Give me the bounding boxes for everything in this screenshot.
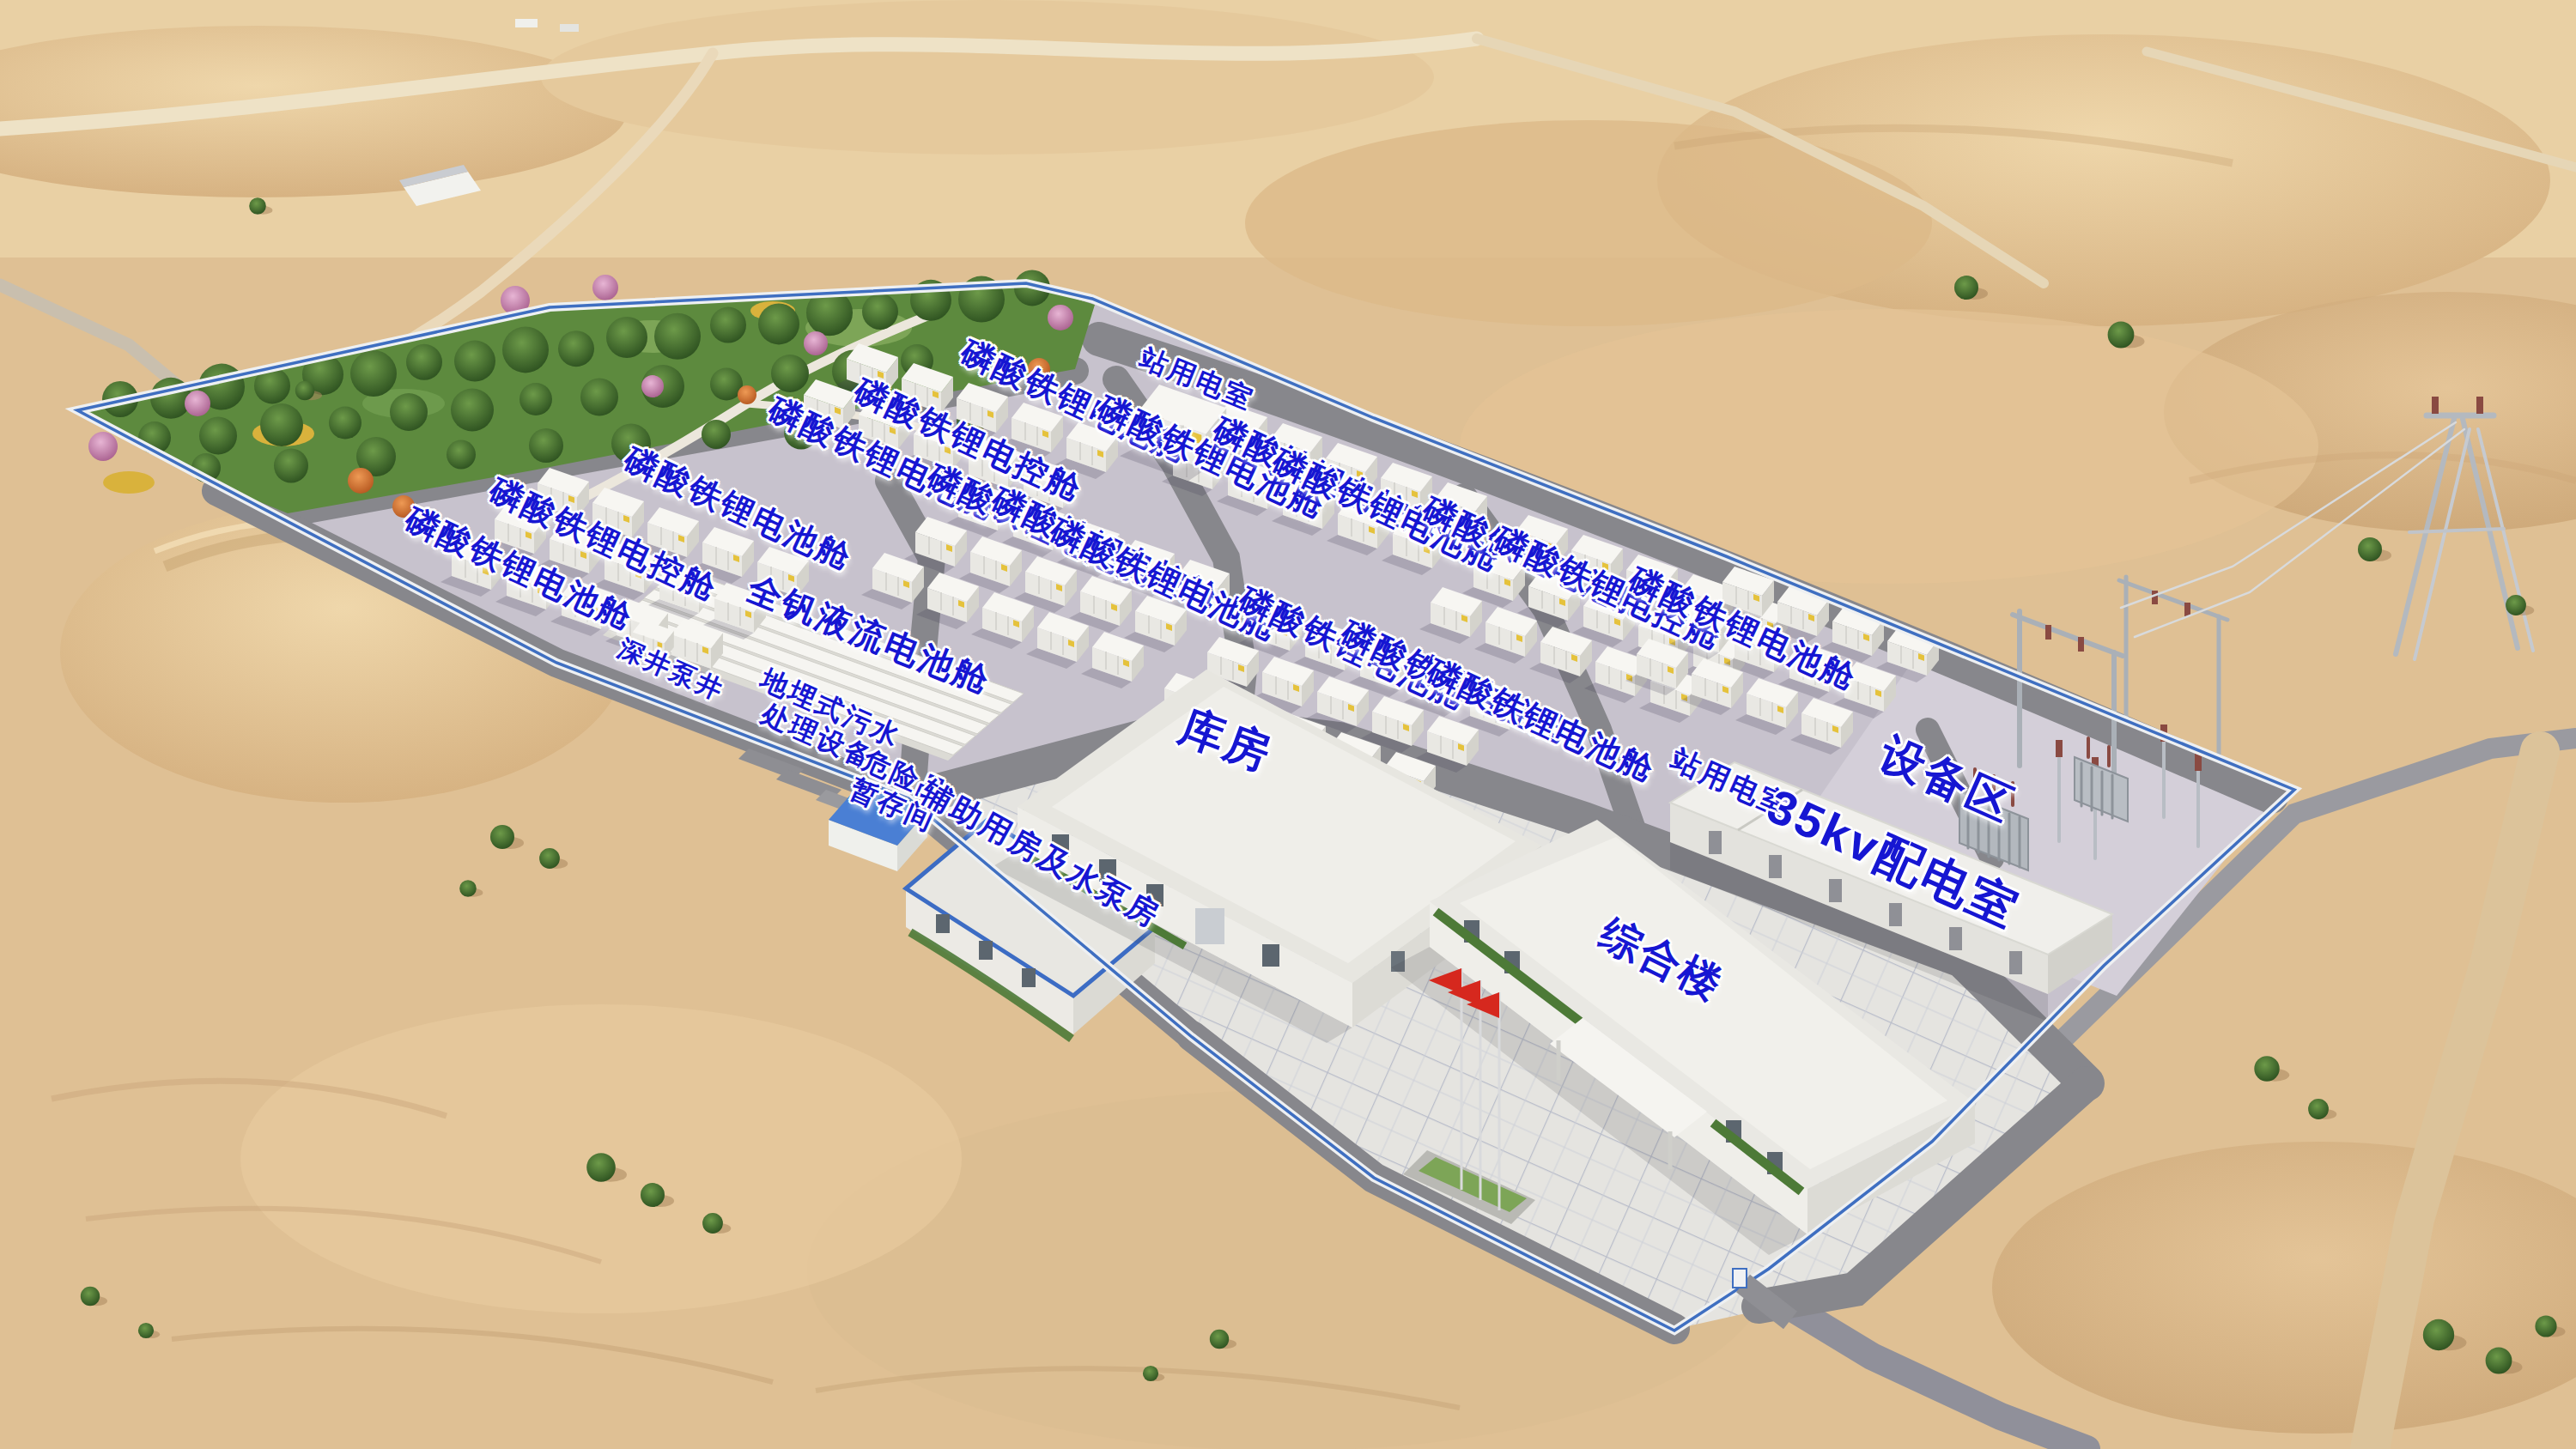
garden-tree bbox=[710, 307, 746, 343]
garden-tree bbox=[447, 440, 476, 470]
flowering-tree bbox=[88, 432, 118, 461]
garden-tree bbox=[390, 393, 428, 431]
garden-tree bbox=[702, 420, 731, 449]
aerial-site-rendering: 磷酸铁锂电池舱磷酸铁锂电池舱磷酸铁锂电控舱磷酸铁锂电池舱磷酸铁锂电池舱磷酸铁锂电… bbox=[0, 0, 2576, 1449]
autumn-tree bbox=[1028, 358, 1050, 380]
autumn-tree bbox=[738, 385, 756, 404]
garden-tree bbox=[558, 330, 594, 367]
flowering-tree bbox=[804, 331, 828, 355]
garden-tree bbox=[862, 294, 898, 330]
garden-tree bbox=[406, 344, 442, 380]
garden-tree bbox=[274, 449, 308, 483]
flowering-tree bbox=[641, 375, 664, 397]
garden-tree bbox=[260, 403, 303, 446]
garden-tree bbox=[502, 326, 549, 373]
garden-tree bbox=[611, 424, 651, 464]
scenery-canvas bbox=[0, 0, 2576, 1449]
garden-tree bbox=[451, 389, 494, 432]
garden-tree bbox=[580, 379, 618, 416]
garden-tree bbox=[519, 383, 552, 415]
garden-tree bbox=[329, 407, 361, 440]
garden-tree bbox=[199, 417, 237, 455]
autumn-tree bbox=[392, 495, 415, 518]
garden-tree bbox=[654, 313, 701, 360]
flowering-tree bbox=[1048, 305, 1073, 330]
gate-pillar bbox=[1733, 1269, 1747, 1288]
garden-tree bbox=[606, 317, 647, 358]
garden-tree bbox=[350, 350, 397, 397]
garden-tree bbox=[529, 428, 563, 463]
autumn-tree bbox=[348, 468, 374, 494]
garden-tree bbox=[758, 303, 799, 344]
garden-tree bbox=[771, 355, 809, 392]
garden-tree bbox=[454, 341, 495, 382]
flowering-tree bbox=[185, 391, 210, 416]
flowering-tree bbox=[592, 275, 618, 300]
